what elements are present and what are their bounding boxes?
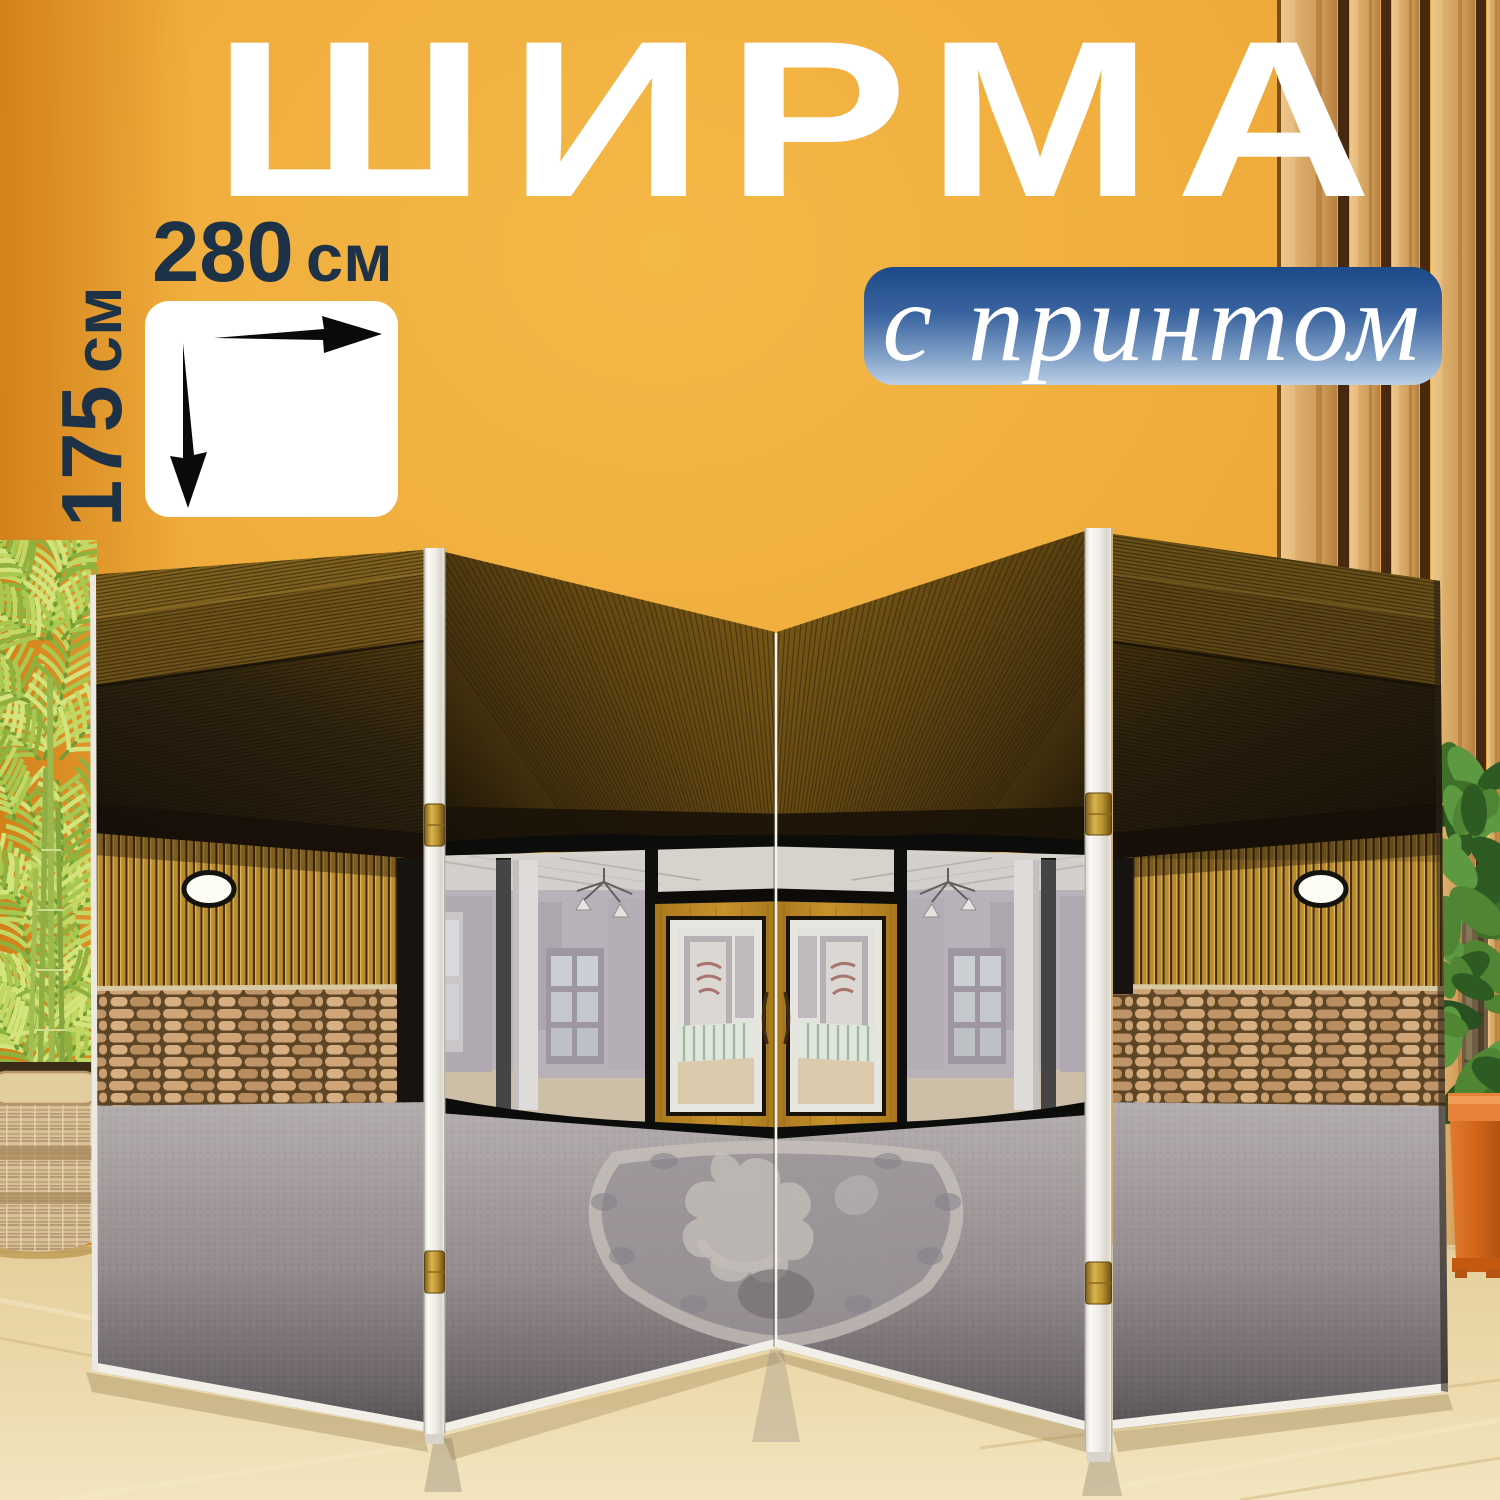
svg-text:с принтом: с принтом (882, 261, 1423, 385)
svg-text:ШИРМА: ШИРМА (213, 0, 1395, 243)
